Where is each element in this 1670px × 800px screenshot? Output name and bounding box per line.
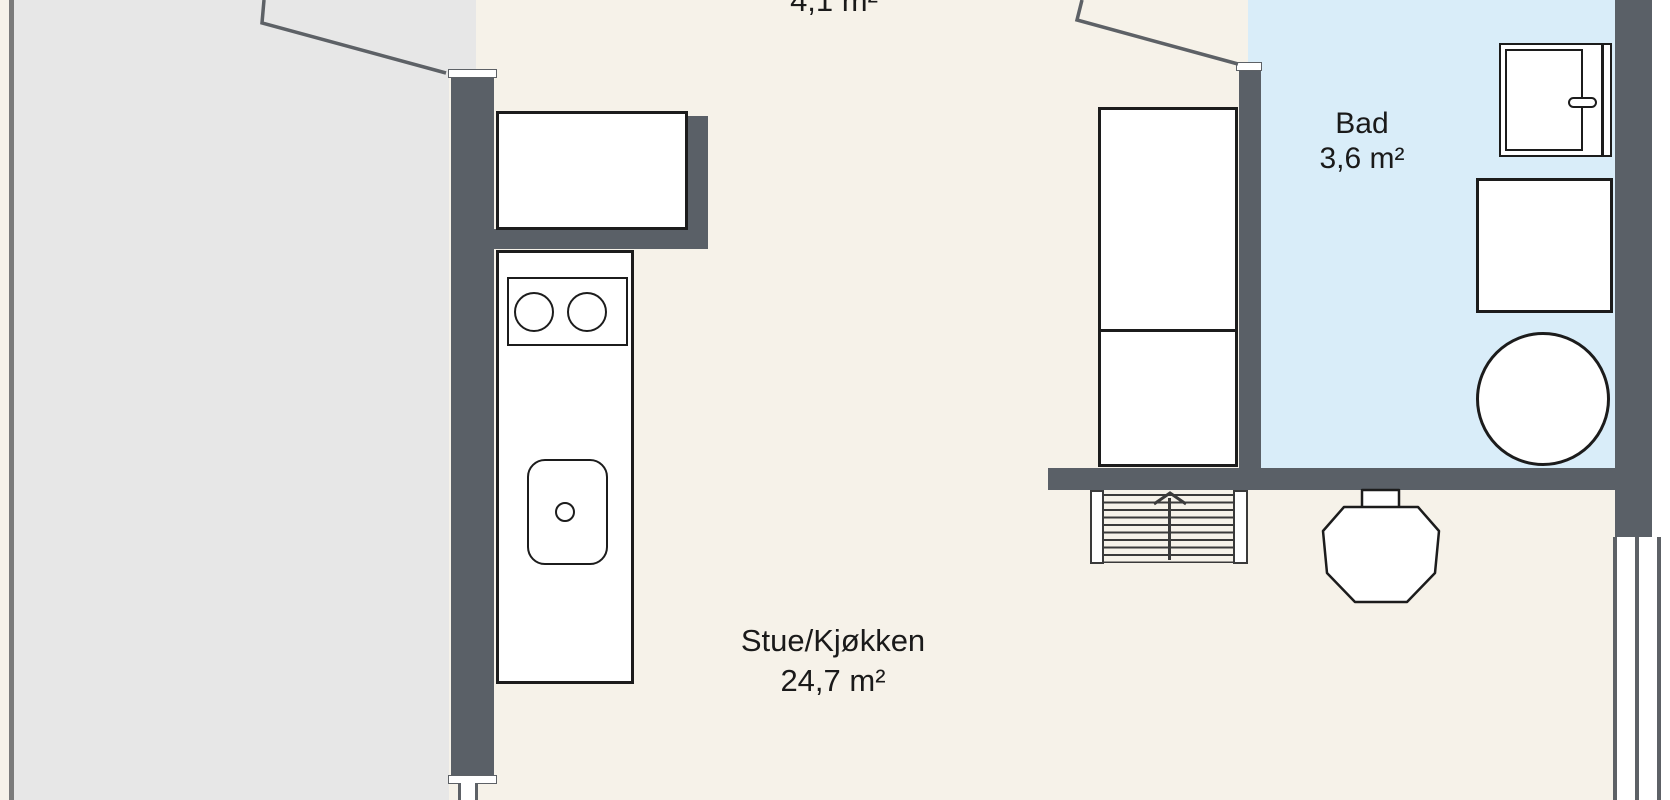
room-label-living-kitchen: Stue/Kjøkken 24,7 m² — [741, 621, 925, 701]
living-kitchen-name: Stue/Kjøkken — [741, 621, 925, 661]
bathroom-area: 3,6 m² — [1319, 141, 1404, 176]
bathroom-door-swing — [1077, 0, 1238, 64]
floorplan-canvas: 4,1 m² Bad 3,6 m² Stue/Kjøkken 24,7 m² — [0, 0, 1670, 800]
terrace-door-swing — [262, 0, 446, 73]
living-kitchen-area: 24,7 m² — [741, 661, 925, 701]
room-label-bathroom: Bad 3,6 m² — [1319, 106, 1404, 176]
stair-up-arrow-icon — [1154, 493, 1186, 504]
room-label-top-area: 4,1 m² — [790, 0, 878, 16]
bathroom-name: Bad — [1319, 106, 1404, 141]
toilet-icon — [1323, 490, 1439, 602]
